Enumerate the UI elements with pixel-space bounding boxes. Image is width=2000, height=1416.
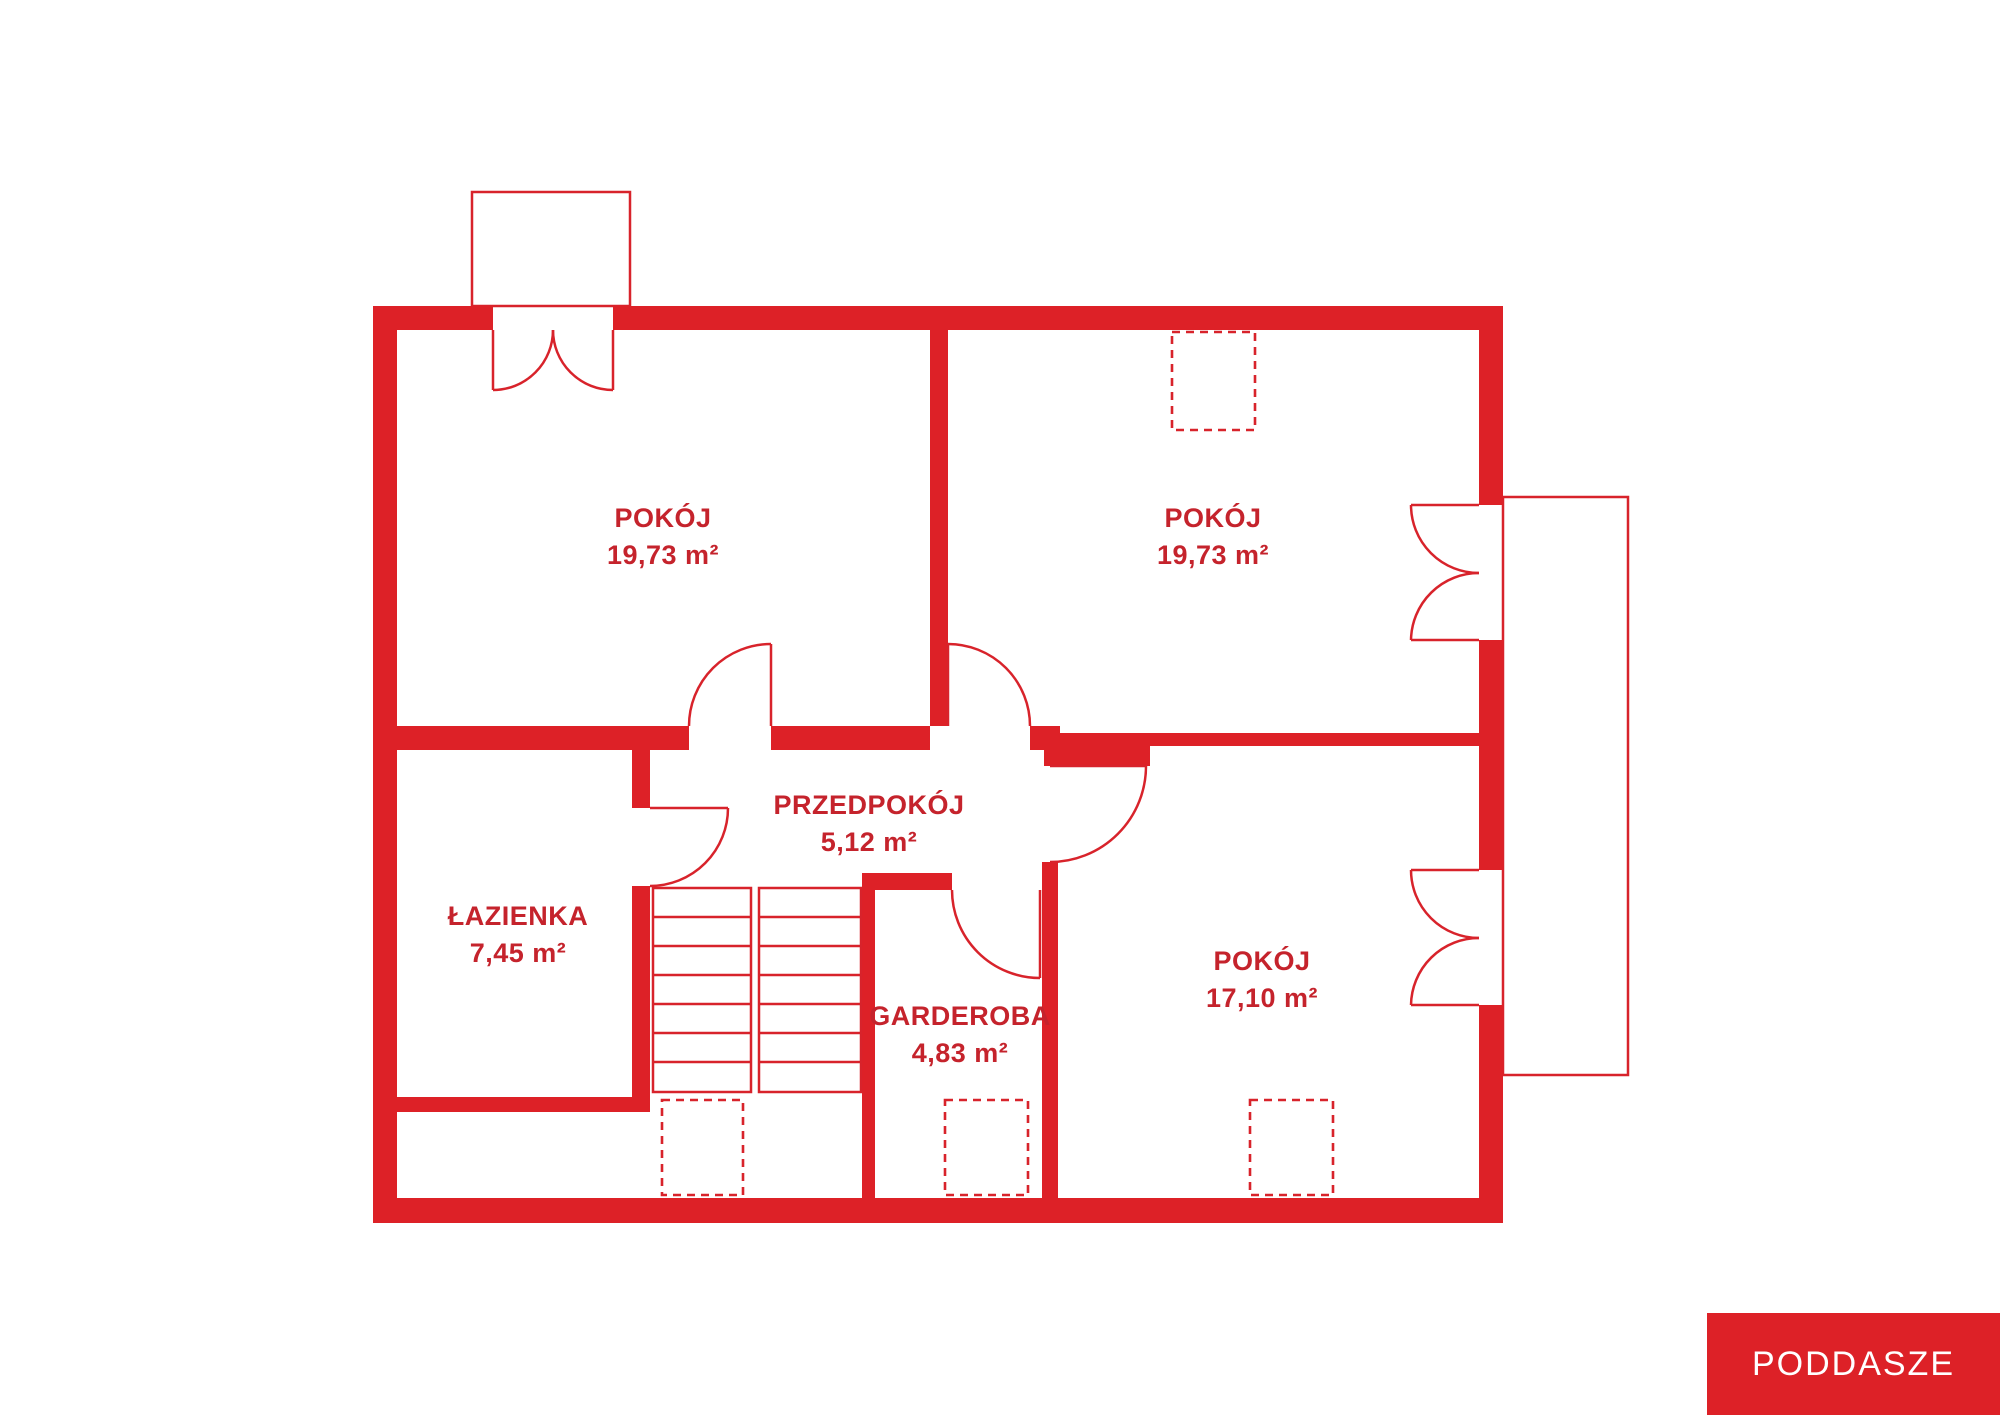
room-name: POKÓJ xyxy=(1157,500,1269,537)
room-area: 4,83 m² xyxy=(869,1035,1051,1072)
room-area: 19,73 m² xyxy=(1157,537,1269,574)
room-label-top-right: POKÓJ 19,73 m² xyxy=(1157,500,1269,574)
dormer-outline xyxy=(472,192,630,306)
room-area: 7,45 m² xyxy=(448,935,589,972)
floor-badge: PODDASZE xyxy=(1707,1313,2000,1415)
room-label-top-left: POKÓJ 19,73 m² xyxy=(607,500,719,574)
floor-plan-page: { "floor": { "badge_label": "PODDASZE" }… xyxy=(0,0,2000,1416)
floor-badge-label: PODDASZE xyxy=(1752,1345,1955,1384)
room-area: 17,10 m² xyxy=(1206,980,1318,1017)
balcony-outline xyxy=(1503,497,1628,1075)
staircase xyxy=(653,888,861,1092)
floor-plan-drawing xyxy=(0,0,2000,1416)
room-name: PRZEDPOKÓJ xyxy=(773,787,964,824)
room-label-wardrobe: GARDEROBA 4,83 m² xyxy=(869,998,1051,1072)
room-label-room-right: POKÓJ 17,10 m² xyxy=(1206,943,1318,1017)
room-area: 5,12 m² xyxy=(773,824,964,861)
room-label-hallway: PRZEDPOKÓJ 5,12 m² xyxy=(773,787,964,861)
room-name: POKÓJ xyxy=(1206,943,1318,980)
room-area: 19,73 m² xyxy=(607,537,719,574)
room-label-bathroom: ŁAZIENKA 7,45 m² xyxy=(448,898,589,972)
room-name: ŁAZIENKA xyxy=(448,898,589,935)
walls xyxy=(373,306,1503,1223)
room-name: GARDEROBA xyxy=(869,998,1051,1035)
room-name: POKÓJ xyxy=(607,500,719,537)
